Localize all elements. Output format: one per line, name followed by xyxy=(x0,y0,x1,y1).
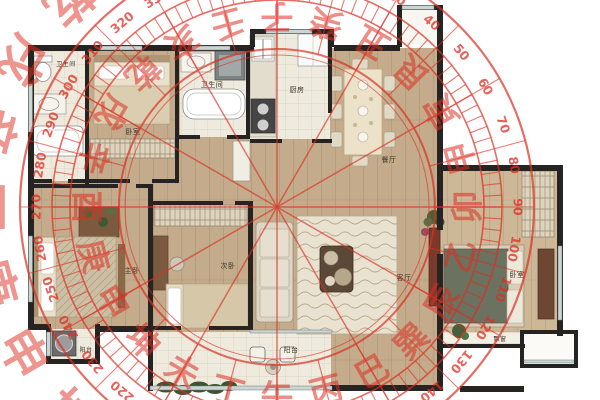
compass-mountain-char: 卯 xyxy=(448,191,487,224)
compass-degree-label: 60 xyxy=(475,75,497,98)
compass-outer-mountain-char: 庚 xyxy=(0,253,26,314)
window xyxy=(558,246,562,320)
compass-tick xyxy=(185,396,192,400)
compass-mountain-char: 酉 xyxy=(68,191,107,224)
compass-tick xyxy=(135,32,146,46)
compass-sector-line xyxy=(494,140,525,148)
room-label-second-bedroom: 次卧 xyxy=(221,261,236,270)
window xyxy=(402,6,434,10)
wardrobe xyxy=(154,205,247,226)
compass-mountain-char: 壬 xyxy=(207,0,249,46)
compass-tick xyxy=(470,126,487,132)
compass-tick xyxy=(456,95,472,104)
desk xyxy=(153,236,168,290)
compass-degree-label: 80 xyxy=(505,155,523,175)
compass-tick xyxy=(361,1,368,17)
compass-degree-label: 130 xyxy=(447,347,475,377)
room-label-balcony: 阳台 xyxy=(284,345,299,354)
compass-tick xyxy=(185,1,192,17)
compass-tick xyxy=(444,75,459,86)
compass-outer-mountain-char: 酉 xyxy=(0,183,11,231)
compass-tick xyxy=(145,25,156,40)
floor-plan: 卫生间 卧室 卫生间 厨房 餐厅 主卧 次卧 客厅 卧室 阳台 阳台 飘窗 xyxy=(28,5,578,395)
compass-degree-label: 270 xyxy=(29,194,44,220)
compass-tick xyxy=(381,12,390,28)
compass-tick xyxy=(351,0,357,14)
coffee-table xyxy=(320,246,353,292)
bay-glass xyxy=(524,360,574,363)
compass-mountain-char: 午 xyxy=(261,378,294,400)
room-label-dining: 餐厅 xyxy=(382,155,397,164)
sliding-door xyxy=(250,330,332,333)
floorplan-compass-canvas: 卫生间 卧室 卫生间 厨房 餐厅 主卧 次卧 客厅 卧室 阳台 阳台 飘窗 01… xyxy=(0,0,600,400)
compass-tick xyxy=(466,115,482,122)
compass-degree-label: 320 xyxy=(107,8,137,36)
compass-degree-label: 50 xyxy=(450,41,473,64)
compass-tick xyxy=(477,149,494,154)
compass-degree-label: 90 xyxy=(511,198,526,216)
wardrobe xyxy=(522,171,554,237)
compass-degree-label: 330 xyxy=(141,0,171,11)
balcony-chair xyxy=(250,347,265,362)
compass-outer-mountain-char: 乾 xyxy=(32,0,106,36)
compass-degree-label: 70 xyxy=(493,114,513,136)
dresser xyxy=(538,249,554,319)
compass-outer-mountain-char: 辛 xyxy=(0,100,26,161)
floorplan-screenshot: 卫生间 卧室 卫生间 厨房 餐厅 主卧 次卧 客厅 卧室 阳台 阳台 飘窗 01… xyxy=(0,0,600,400)
room-label-kitchen: 厨房 xyxy=(290,85,305,94)
compass-tick xyxy=(165,12,174,28)
compass-mountain-char: 子 xyxy=(261,0,294,37)
compass-tick xyxy=(196,0,202,14)
